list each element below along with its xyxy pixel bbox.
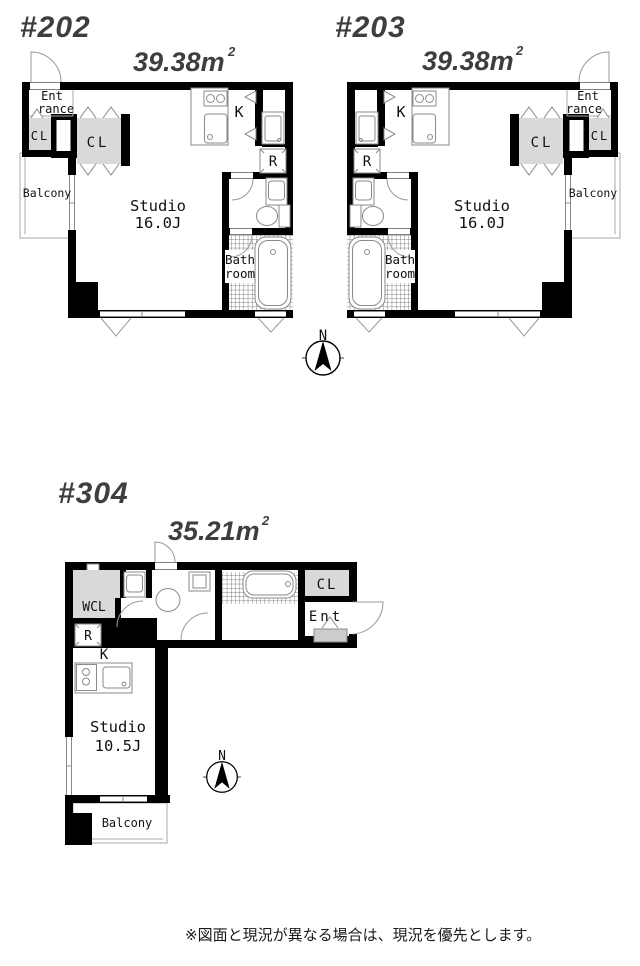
compass-top: N bbox=[302, 328, 344, 375]
unit-202-closet-a-label: CL bbox=[31, 129, 49, 143]
unit-203-refrigerator-label: R bbox=[363, 154, 372, 170]
compass-north-label: N bbox=[218, 749, 226, 764]
unit-202-entrance-label: Ent bbox=[41, 89, 63, 103]
unit-202: #202 39.38m 2 Ent rance CL CL Balcony St… bbox=[20, 11, 293, 336]
unit-202-area-sup: 2 bbox=[227, 44, 236, 59]
compass-north-label: N bbox=[319, 328, 327, 344]
unit-203-studio-label: Studio bbox=[454, 197, 510, 215]
unit-203-balcony-label: Balcony bbox=[569, 186, 618, 200]
unit-203-closet-b-label: CL bbox=[531, 135, 554, 151]
unit-203-entrance-label2: rance bbox=[566, 102, 602, 116]
compass-icon bbox=[302, 341, 344, 375]
unit-203: #203 39.38m 2 Ent rance CL CL Balcony St… bbox=[335, 11, 620, 336]
floorplan-canvas: #202 39.38m 2 Ent rance CL CL Balcony St… bbox=[0, 0, 640, 966]
unit-304-refrigerator-label: R bbox=[84, 629, 92, 644]
unit-202-area: 39.38m bbox=[133, 47, 225, 77]
unit-203-area: 39.38m bbox=[422, 46, 514, 76]
unit-304-closet-label: CL bbox=[317, 577, 338, 593]
unit-202-bath-label2: room bbox=[225, 266, 255, 281]
unit-202-studio-label: Studio bbox=[130, 197, 186, 215]
unit-304-studio-label: Studio bbox=[90, 718, 146, 736]
unit-202-studio-size: 16.0J bbox=[135, 214, 182, 232]
unit-203-closet-a-label: CL bbox=[591, 129, 609, 143]
unit-202-title: #202 bbox=[20, 11, 91, 44]
unit-304: #304 35.21m 2 WCL R K CL Ent Studio 10.5… bbox=[58, 477, 383, 845]
unit-202-balcony-label: Balcony bbox=[23, 186, 72, 200]
unit-202-kitchen-label: K bbox=[234, 103, 243, 121]
unit-203-title: #203 bbox=[335, 11, 406, 44]
unit-304-kitchen-label: K bbox=[100, 647, 109, 663]
unit-304-area-sup: 2 bbox=[261, 513, 270, 528]
unit-203-studio-size: 16.0J bbox=[459, 214, 506, 232]
unit-202-refrigerator-label: R bbox=[269, 154, 278, 170]
unit-202-closet-b-label: CL bbox=[87, 135, 110, 151]
unit-203-entrance-label: Ent bbox=[577, 89, 599, 103]
floorplan-page: #202 39.38m 2 Ent rance CL CL Balcony St… bbox=[0, 0, 640, 966]
unit-203-kitchen-label: K bbox=[396, 103, 405, 121]
compass-icon bbox=[203, 762, 241, 793]
compass-bottom: N bbox=[203, 749, 241, 792]
unit-203-bath-label: Bath bbox=[385, 252, 415, 267]
unit-203-area-sup: 2 bbox=[515, 43, 524, 58]
unit-203-bath-label2: room bbox=[385, 266, 415, 281]
unit-304-entrance-label: Ent bbox=[309, 609, 343, 625]
unit-304-studio-size: 10.5J bbox=[95, 737, 142, 755]
unit-202-bath-label: Bath bbox=[225, 252, 255, 267]
unit-304-wcl-label: WCL bbox=[82, 600, 106, 615]
unit-202-entrance-label2: rance bbox=[38, 102, 74, 116]
unit-304-area: 35.21m bbox=[168, 516, 260, 546]
unit-304-balcony-label: Balcony bbox=[102, 816, 153, 830]
unit-304-title: #304 bbox=[58, 477, 129, 510]
disclaimer-note: ※図面と現況が異なる場合は、現況を優先とします。 bbox=[185, 926, 541, 944]
